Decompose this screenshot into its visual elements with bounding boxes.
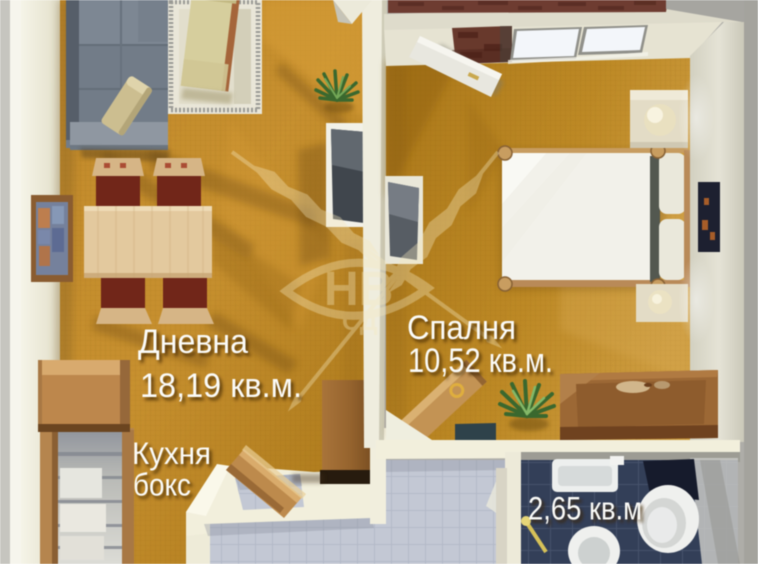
svg-text:18,19 кв.м.: 18,19 кв.м.: [140, 367, 302, 405]
svg-text:Дневна: Дневна: [138, 323, 248, 361]
svg-text:бокс: бокс: [133, 467, 191, 503]
svg-text:СД: СД: [342, 308, 378, 336]
svg-text:2,65 кв.м: 2,65 кв.м: [528, 491, 642, 527]
svg-text:10,52 кв.м.: 10,52 кв.м.: [408, 342, 553, 380]
